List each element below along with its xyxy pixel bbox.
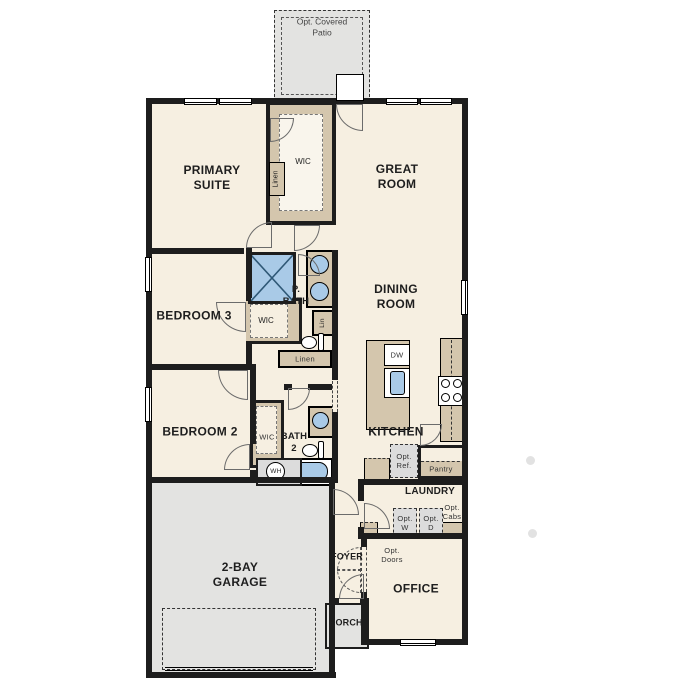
- pbath-lin-label: Lin: [319, 318, 327, 328]
- kitchen-label: KITCHEN: [368, 425, 423, 440]
- wall-bed2-right-a: [250, 364, 256, 444]
- wall-kitchen-laundry: [360, 479, 462, 485]
- watermark-dot-1: [526, 456, 535, 465]
- wall-left-garage: [146, 483, 152, 678]
- opt-doors-label: Opt. Doors: [381, 546, 403, 564]
- pbath-label: P. BATH: [283, 284, 309, 308]
- wall-garage-bottom: [146, 672, 336, 678]
- island-sink-basin: [390, 371, 405, 395]
- great-room-label: GREAT ROOM: [376, 162, 419, 192]
- burner-3: [441, 393, 450, 402]
- bedroom2-label: BEDROOM 2: [162, 425, 237, 440]
- water-heater-label: WH: [270, 468, 281, 476]
- office-window: [400, 639, 436, 646]
- wall-laundry-left-a: [358, 479, 364, 501]
- bedroom3-label: BEDROOM 3: [156, 309, 231, 324]
- garage-door-outline: [162, 608, 316, 670]
- dining-cased-opening: [332, 381, 338, 412]
- bath2-toilet-tank: [318, 441, 324, 459]
- pantry-label: Pantry: [429, 465, 452, 474]
- garage-door-double-line: [165, 667, 313, 671]
- pbath-sink-2: [310, 282, 329, 301]
- patio-label: Opt. Covered Patio: [297, 16, 348, 37]
- wall-foyer-bottom-left: [329, 598, 339, 604]
- primary-window-2: [219, 98, 252, 105]
- floor-plan: Opt. Covered Patio PRIMARY SUITE WIC Lin…: [0, 0, 687, 687]
- primary-linen-label: Linen: [273, 170, 282, 187]
- wall-primary-bed3: [146, 248, 244, 254]
- office-label: OFFICE: [393, 582, 439, 597]
- wall-office-left-a: [361, 533, 367, 547]
- bedroom3-window: [145, 257, 152, 292]
- burner-2: [453, 379, 462, 388]
- kitchen-cabinet: [364, 458, 390, 480]
- opt-cabs-label: Opt. Cabs: [443, 503, 462, 521]
- watermark-dot-2: [528, 529, 537, 538]
- primary-suite-label: PRIMARY SUITE: [184, 163, 241, 193]
- bath2-sink: [312, 412, 329, 429]
- wall-right: [462, 98, 468, 645]
- wall-hall-great-a: [332, 250, 338, 380]
- wall-bath2-top-b: [308, 384, 335, 390]
- hall-linen-label: Linen: [295, 355, 315, 364]
- bedroom2-wic-shelf-outline: [256, 406, 277, 454]
- burner-1: [441, 379, 450, 388]
- garage-label: 2-BAY GARAGE: [213, 560, 267, 590]
- patio-door-jamb: [336, 74, 364, 101]
- opt-ref-label: Opt. Ref.: [396, 452, 411, 470]
- wall-hall-great-b: [332, 412, 338, 483]
- porch-label: PORCH: [329, 617, 363, 628]
- wall-bed3-right-a: [246, 248, 252, 298]
- wall-bed2-right-b: [250, 470, 256, 483]
- foyer-label: FOYER: [331, 551, 363, 562]
- primary-window-1: [184, 98, 217, 105]
- burner-4: [453, 393, 462, 402]
- opt-washer-label: Opt. W: [397, 514, 412, 532]
- primary-wic-label: WIC: [295, 157, 311, 167]
- bedroom2-wic-label: WIC: [259, 433, 274, 442]
- bedroom3-wic-label: WIC: [258, 316, 274, 326]
- pbath-toilet-tank: [318, 333, 324, 351]
- dishwasher-label: DW: [390, 351, 403, 360]
- greatroom-window-2: [420, 98, 452, 105]
- greatroom-window-1: [386, 98, 418, 105]
- bedroom2-window: [145, 387, 152, 422]
- dining-window: [461, 280, 468, 315]
- dining-room-label: DINING ROOM: [374, 282, 418, 312]
- wall-bed2-garage: [146, 477, 332, 483]
- bath2-label: BATH 2: [281, 431, 307, 455]
- pbath-toilet-bowl: [301, 336, 317, 349]
- laundry-label: LAUNDRY: [405, 486, 455, 499]
- opt-dryer-label: Opt. D: [423, 514, 438, 532]
- wall-laundry-office: [358, 533, 468, 539]
